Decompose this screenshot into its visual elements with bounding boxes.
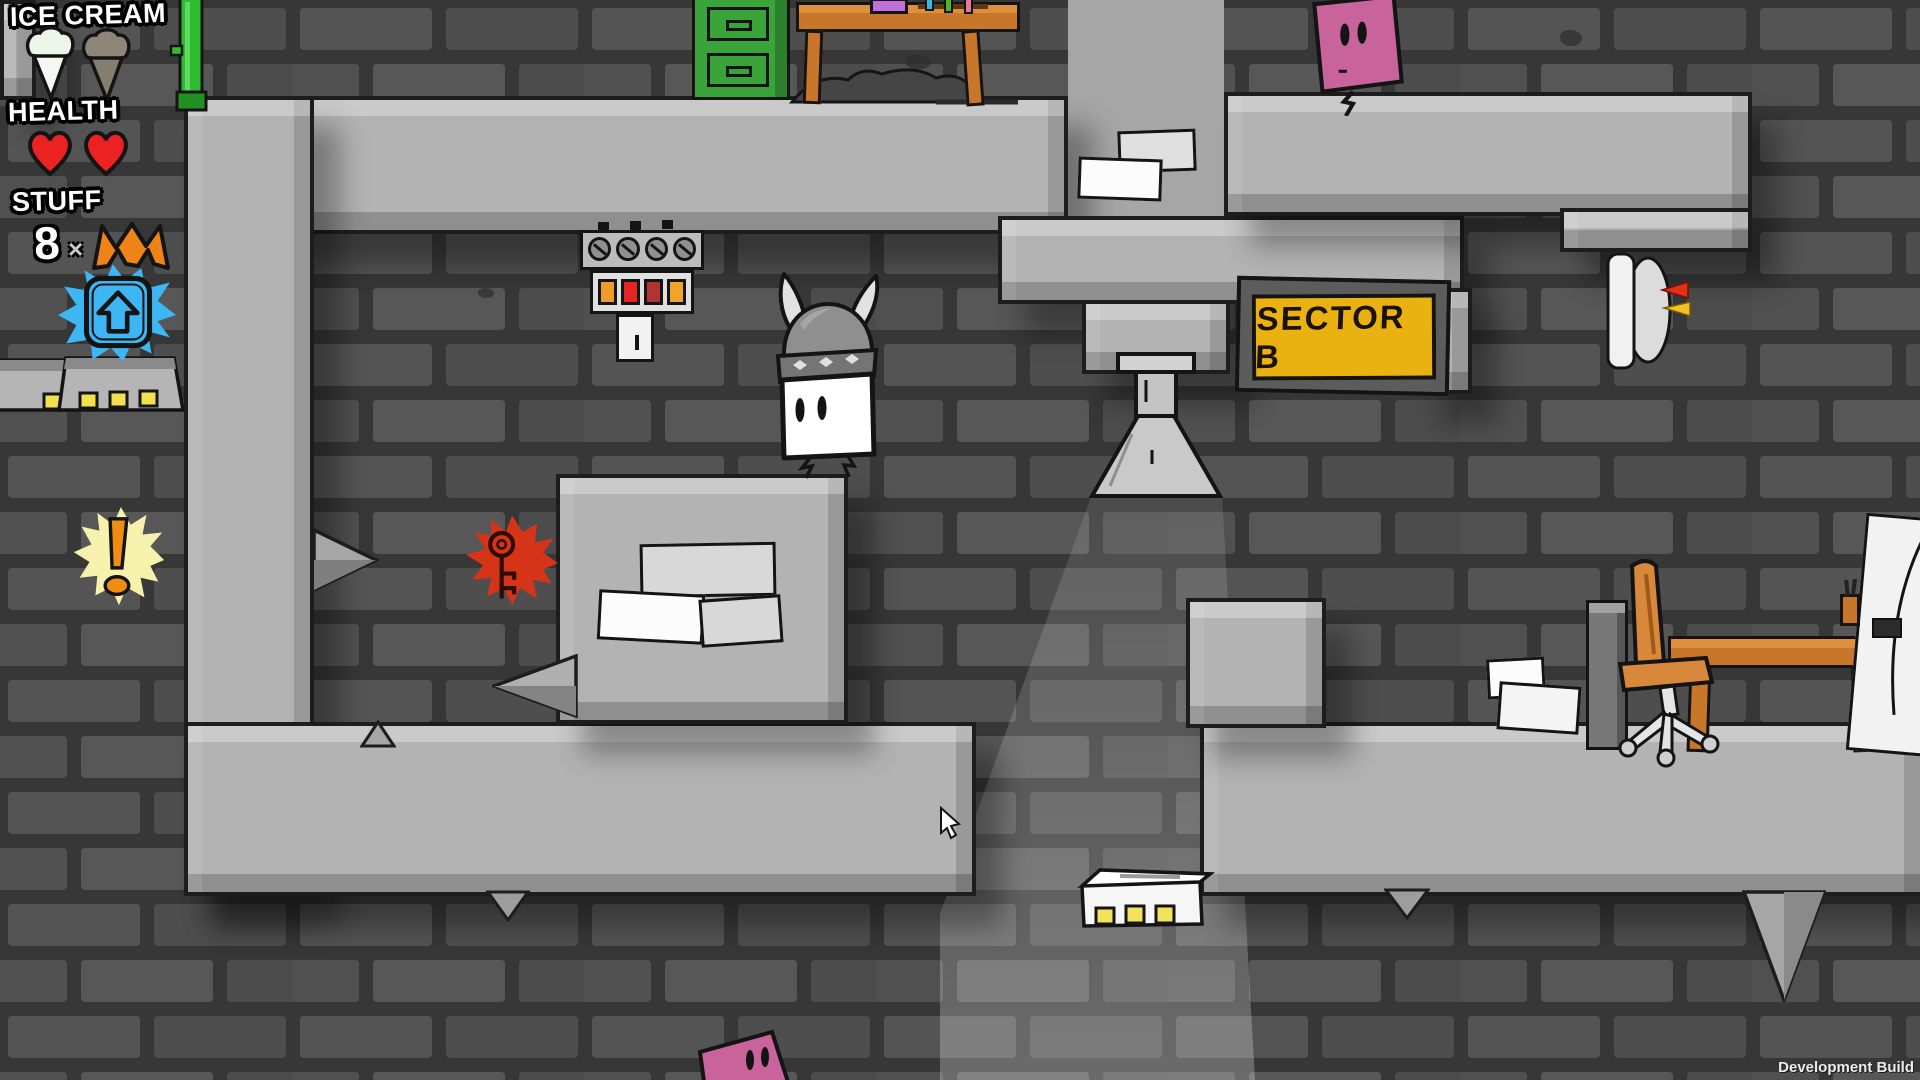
platform-right-step: [1186, 598, 1326, 728]
paper-box: [640, 542, 777, 598]
platform-bottom-left: [184, 722, 976, 896]
game-viewport[interactable]: SECTOR B: [0, 0, 1920, 1080]
paper-box: [698, 594, 783, 648]
test-tube-pink: [964, 0, 973, 14]
eye: [761, 1047, 769, 1067]
eye: [818, 396, 827, 420]
control-panel-plate: [580, 230, 704, 270]
pen-cup: [1840, 594, 1860, 626]
leg: [1344, 92, 1353, 116]
character-body: [782, 374, 874, 458]
small-spike-up: [360, 720, 396, 748]
sector-sign-panel: SECTOR B: [1252, 294, 1436, 381]
wall-spike-right: [312, 528, 380, 594]
health-label: HEALTH: [8, 95, 119, 129]
paper-sheet: [1077, 157, 1162, 202]
jump-upgrade-splat: [56, 262, 178, 364]
test-tube-green: [944, 0, 953, 13]
screw-icon: [673, 237, 696, 261]
sector-sign: SECTOR B: [1235, 276, 1451, 396]
large-spike-down: [1742, 890, 1826, 1002]
panel-mount-tab: [662, 220, 673, 229]
table-leg: [803, 30, 824, 105]
cabinet-drawer: [707, 7, 769, 41]
brick-chip: [478, 288, 494, 298]
paper-box: [597, 589, 705, 644]
platform-bottom-right: [1200, 722, 1920, 896]
eye: [746, 1050, 754, 1070]
heart-icon: [86, 133, 126, 174]
platform-top-floor: [184, 96, 1068, 234]
screw-icon: [616, 237, 639, 261]
white-vent-machine: [1076, 864, 1218, 930]
pink-square-enemy: [1300, 0, 1412, 116]
sector-sign-text: SECTOR B: [1254, 298, 1433, 376]
hud: ICE CREAM HEALTH STUFF 8 ×: [0, 0, 230, 400]
ice-cream-cone-icon: [28, 28, 73, 98]
heart-icon: [30, 133, 70, 174]
screw-icon: [645, 237, 668, 261]
ceiling-spike-down: [1384, 888, 1430, 920]
filing-cabinet: [692, 0, 790, 100]
viking-square-character: [770, 268, 892, 482]
indicator-light-red: [644, 279, 663, 305]
screw-icon: [588, 237, 611, 261]
purple-item: [870, 0, 908, 14]
floor-spike-left: [492, 654, 578, 720]
office-chair: [1612, 556, 1746, 768]
indicator-light-orange: [598, 279, 617, 305]
drawer-handle: [726, 66, 752, 77]
brick-chip: [1560, 30, 1582, 46]
pink-square-enemy: [690, 1028, 796, 1080]
eye: [1340, 23, 1349, 45]
platform-right-ledge: [1560, 208, 1752, 252]
test-tube-blue: [925, 0, 934, 11]
dev-build-watermark: Development Build: [1778, 1059, 1914, 1076]
ice-cream-icons: [20, 24, 132, 102]
desk-object: [1872, 618, 1902, 638]
control-panel-lights: [590, 270, 694, 314]
stuff-multiplier: ×: [68, 234, 83, 265]
mouse-cursor: [938, 806, 964, 840]
control-panel-stem: [616, 314, 654, 362]
ceiling-spike-down: [486, 890, 530, 922]
stuff-label: STUFF: [12, 185, 102, 218]
paper-sheet: [1496, 681, 1581, 735]
cone-ceiling-lamp: [1080, 350, 1232, 502]
indicator-light-orange: [667, 279, 686, 305]
leg: [802, 458, 812, 478]
key-splat: [458, 506, 562, 612]
ice-cream-cone-icon-spent: [84, 30, 129, 100]
exclamation-burst: [62, 502, 170, 622]
wall-door-object: [1600, 248, 1696, 378]
leg: [844, 456, 854, 477]
panel-mount-tab: [630, 221, 641, 230]
eye: [1358, 21, 1367, 43]
indicator-light-red: [621, 279, 640, 305]
health-hearts: [24, 126, 136, 180]
drawer-handle: [726, 20, 752, 31]
eye: [796, 398, 805, 422]
cabinet-drawer: [707, 53, 769, 87]
